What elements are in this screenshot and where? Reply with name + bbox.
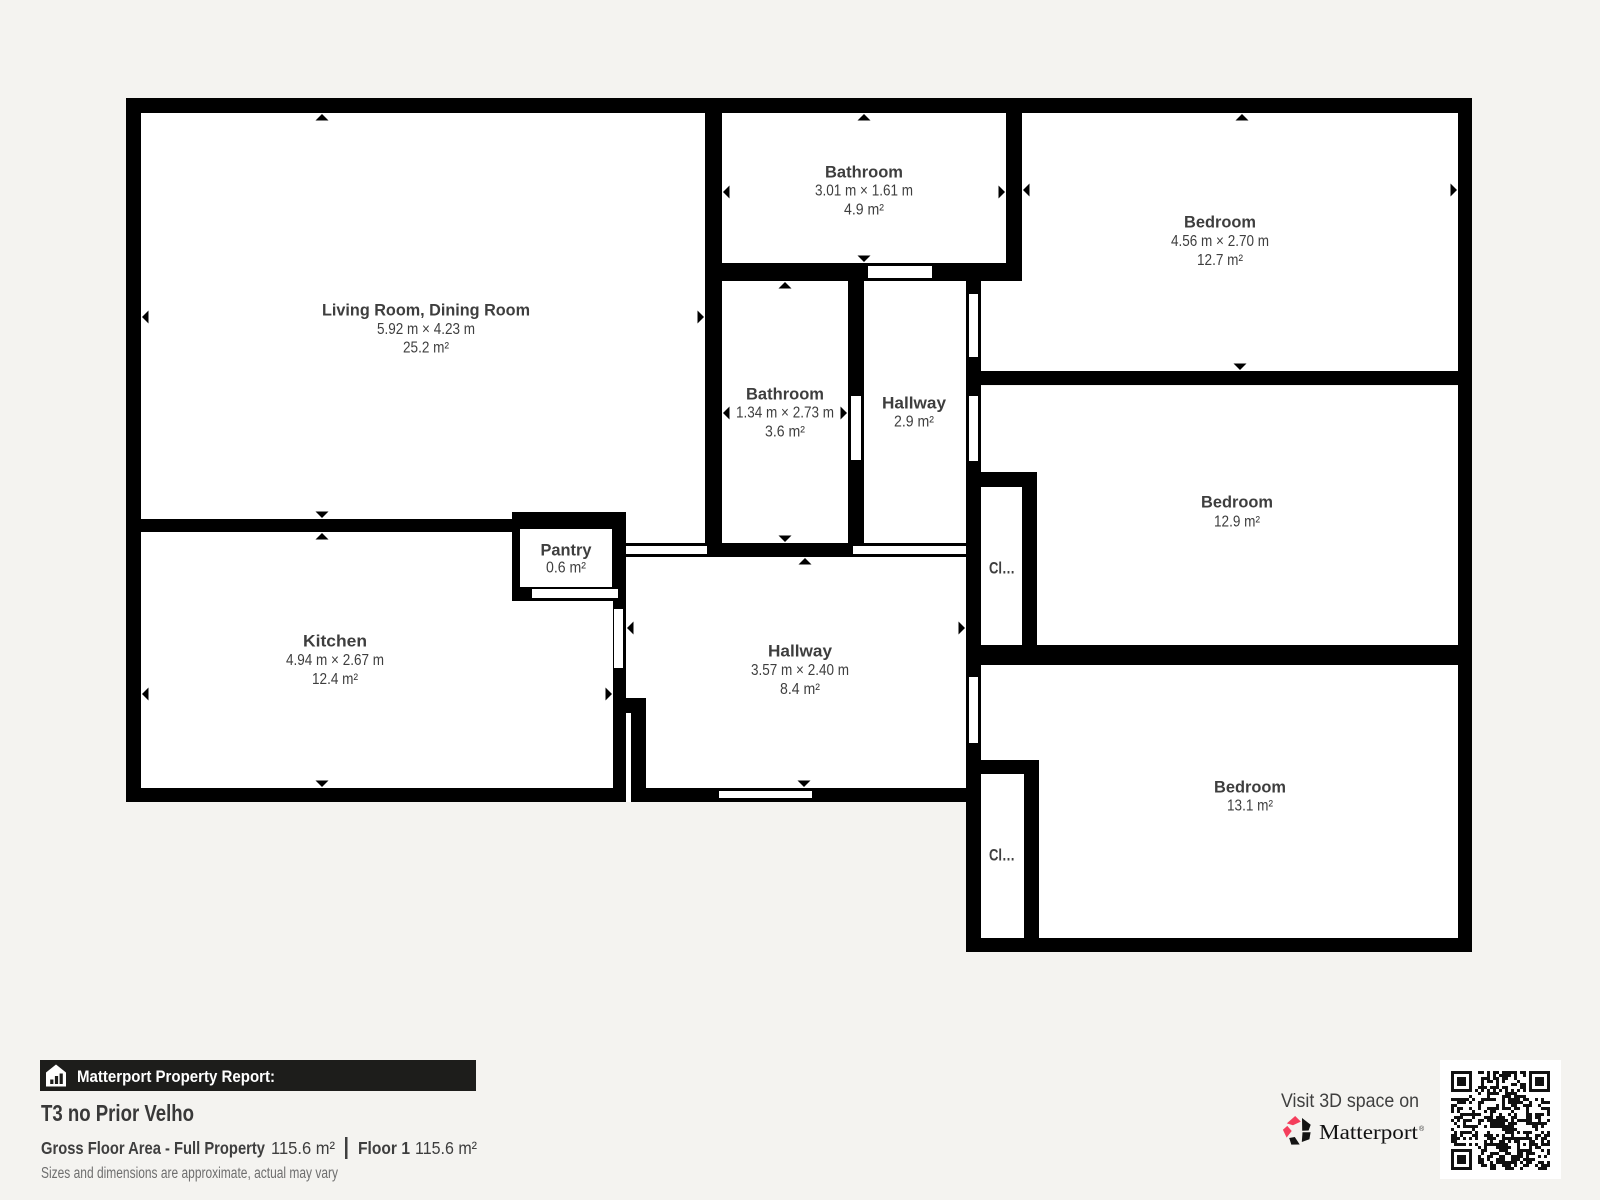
svg-text:3.01 m × 1.61 m: 3.01 m × 1.61 m <box>815 183 913 200</box>
svg-text:0.6 m²: 0.6 m² <box>546 560 586 577</box>
svg-text:Bathroom: Bathroom <box>825 163 903 182</box>
svg-text:12.7 m²: 12.7 m² <box>1197 252 1243 269</box>
svg-text:4.9 m²: 4.9 m² <box>844 202 884 219</box>
svg-text:12.4 m²: 12.4 m² <box>312 671 358 688</box>
svg-text:115.6 m²: 115.6 m² <box>271 1138 335 1158</box>
svg-text:Bedroom: Bedroom <box>1214 778 1286 797</box>
svg-text:Matterport: Matterport <box>1319 1120 1418 1144</box>
svg-text:Hallway: Hallway <box>768 642 833 661</box>
svg-text:Bedroom: Bedroom <box>1184 213 1256 232</box>
svg-text:Living Room, Dining Room: Living Room, Dining Room <box>322 301 530 320</box>
svg-text:Matterport Property Report:: Matterport Property Report: <box>77 1068 275 1086</box>
svg-text:3.6 m²: 3.6 m² <box>765 424 805 441</box>
svg-text:13.1 m²: 13.1 m² <box>1227 798 1273 815</box>
svg-text:Cl…: Cl… <box>989 846 1015 865</box>
svg-text:2.9 m²: 2.9 m² <box>894 414 934 431</box>
svg-text:4.94 m × 2.67 m: 4.94 m × 2.67 m <box>286 652 384 669</box>
svg-text:4.56 m × 2.70 m: 4.56 m × 2.70 m <box>1171 233 1269 250</box>
svg-text:Bedroom: Bedroom <box>1201 493 1273 512</box>
svg-text:T3 no Prior Velho: T3 no Prior Velho <box>41 1100 194 1126</box>
svg-text:25.2 m²: 25.2 m² <box>403 340 449 357</box>
svg-text:Floor 1: Floor 1 <box>358 1138 410 1158</box>
svg-text:Gross Floor Area - Full Proper: Gross Floor Area - Full Property <box>41 1138 265 1158</box>
svg-text:Kitchen: Kitchen <box>303 632 367 651</box>
svg-text:Visit 3D space on: Visit 3D space on <box>1281 1090 1419 1112</box>
svg-text:Pantry: Pantry <box>541 541 593 560</box>
svg-text:Sizes and dimensions are appro: Sizes and dimensions are approximate, ac… <box>41 1165 338 1182</box>
svg-text:Bathroom: Bathroom <box>746 385 824 404</box>
svg-text:®: ® <box>1419 1125 1425 1133</box>
svg-text:3.57 m × 2.40 m: 3.57 m × 2.40 m <box>751 662 849 679</box>
svg-text:8.4 m²: 8.4 m² <box>780 681 820 698</box>
svg-text:12.9 m²: 12.9 m² <box>1214 514 1260 531</box>
svg-text:Cl…: Cl… <box>989 559 1015 578</box>
svg-text:115.6 m²: 115.6 m² <box>415 1138 477 1158</box>
svg-text:1.34 m × 2.73 m: 1.34 m × 2.73 m <box>736 405 834 422</box>
svg-text:Hallway: Hallway <box>882 394 947 413</box>
svg-text:5.92 m × 4.23 m: 5.92 m × 4.23 m <box>377 321 475 338</box>
